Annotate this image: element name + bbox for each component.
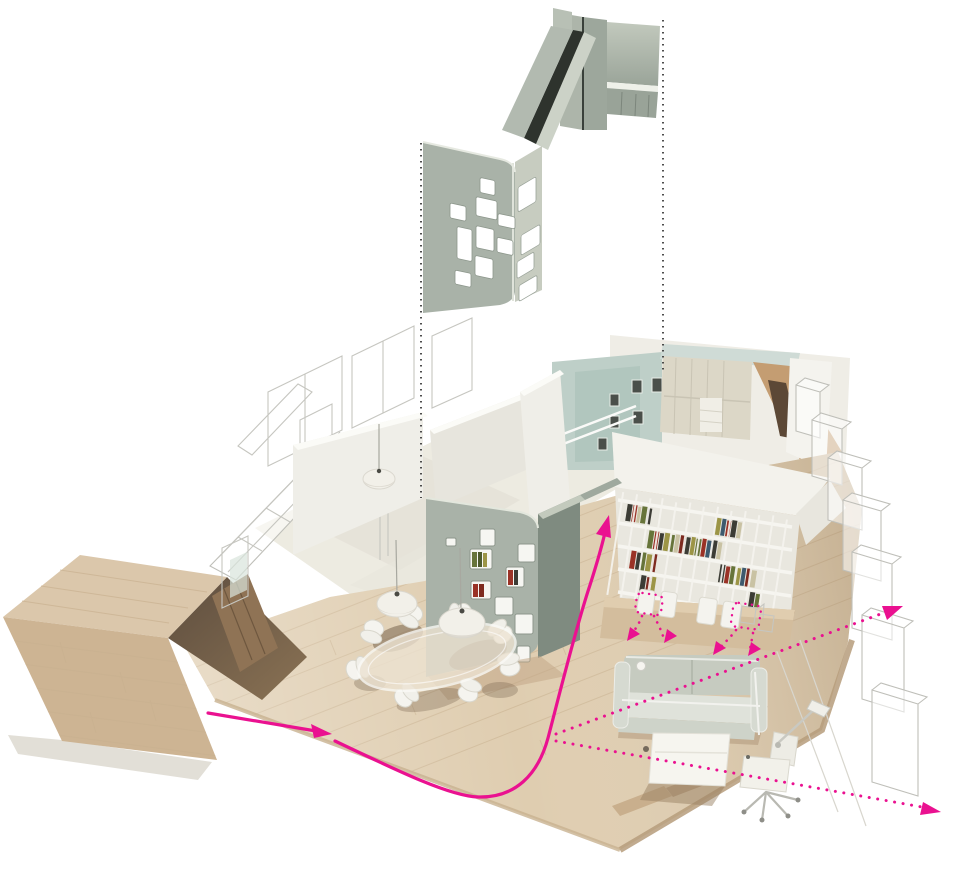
sightline-lower-arrowhead	[920, 802, 941, 815]
kitchen-cabinets	[660, 356, 752, 440]
exploded-wall-assembly	[423, 8, 660, 313]
sofa	[613, 655, 767, 740]
diagram-canvas	[0, 0, 961, 879]
storage-volume	[3, 536, 307, 780]
